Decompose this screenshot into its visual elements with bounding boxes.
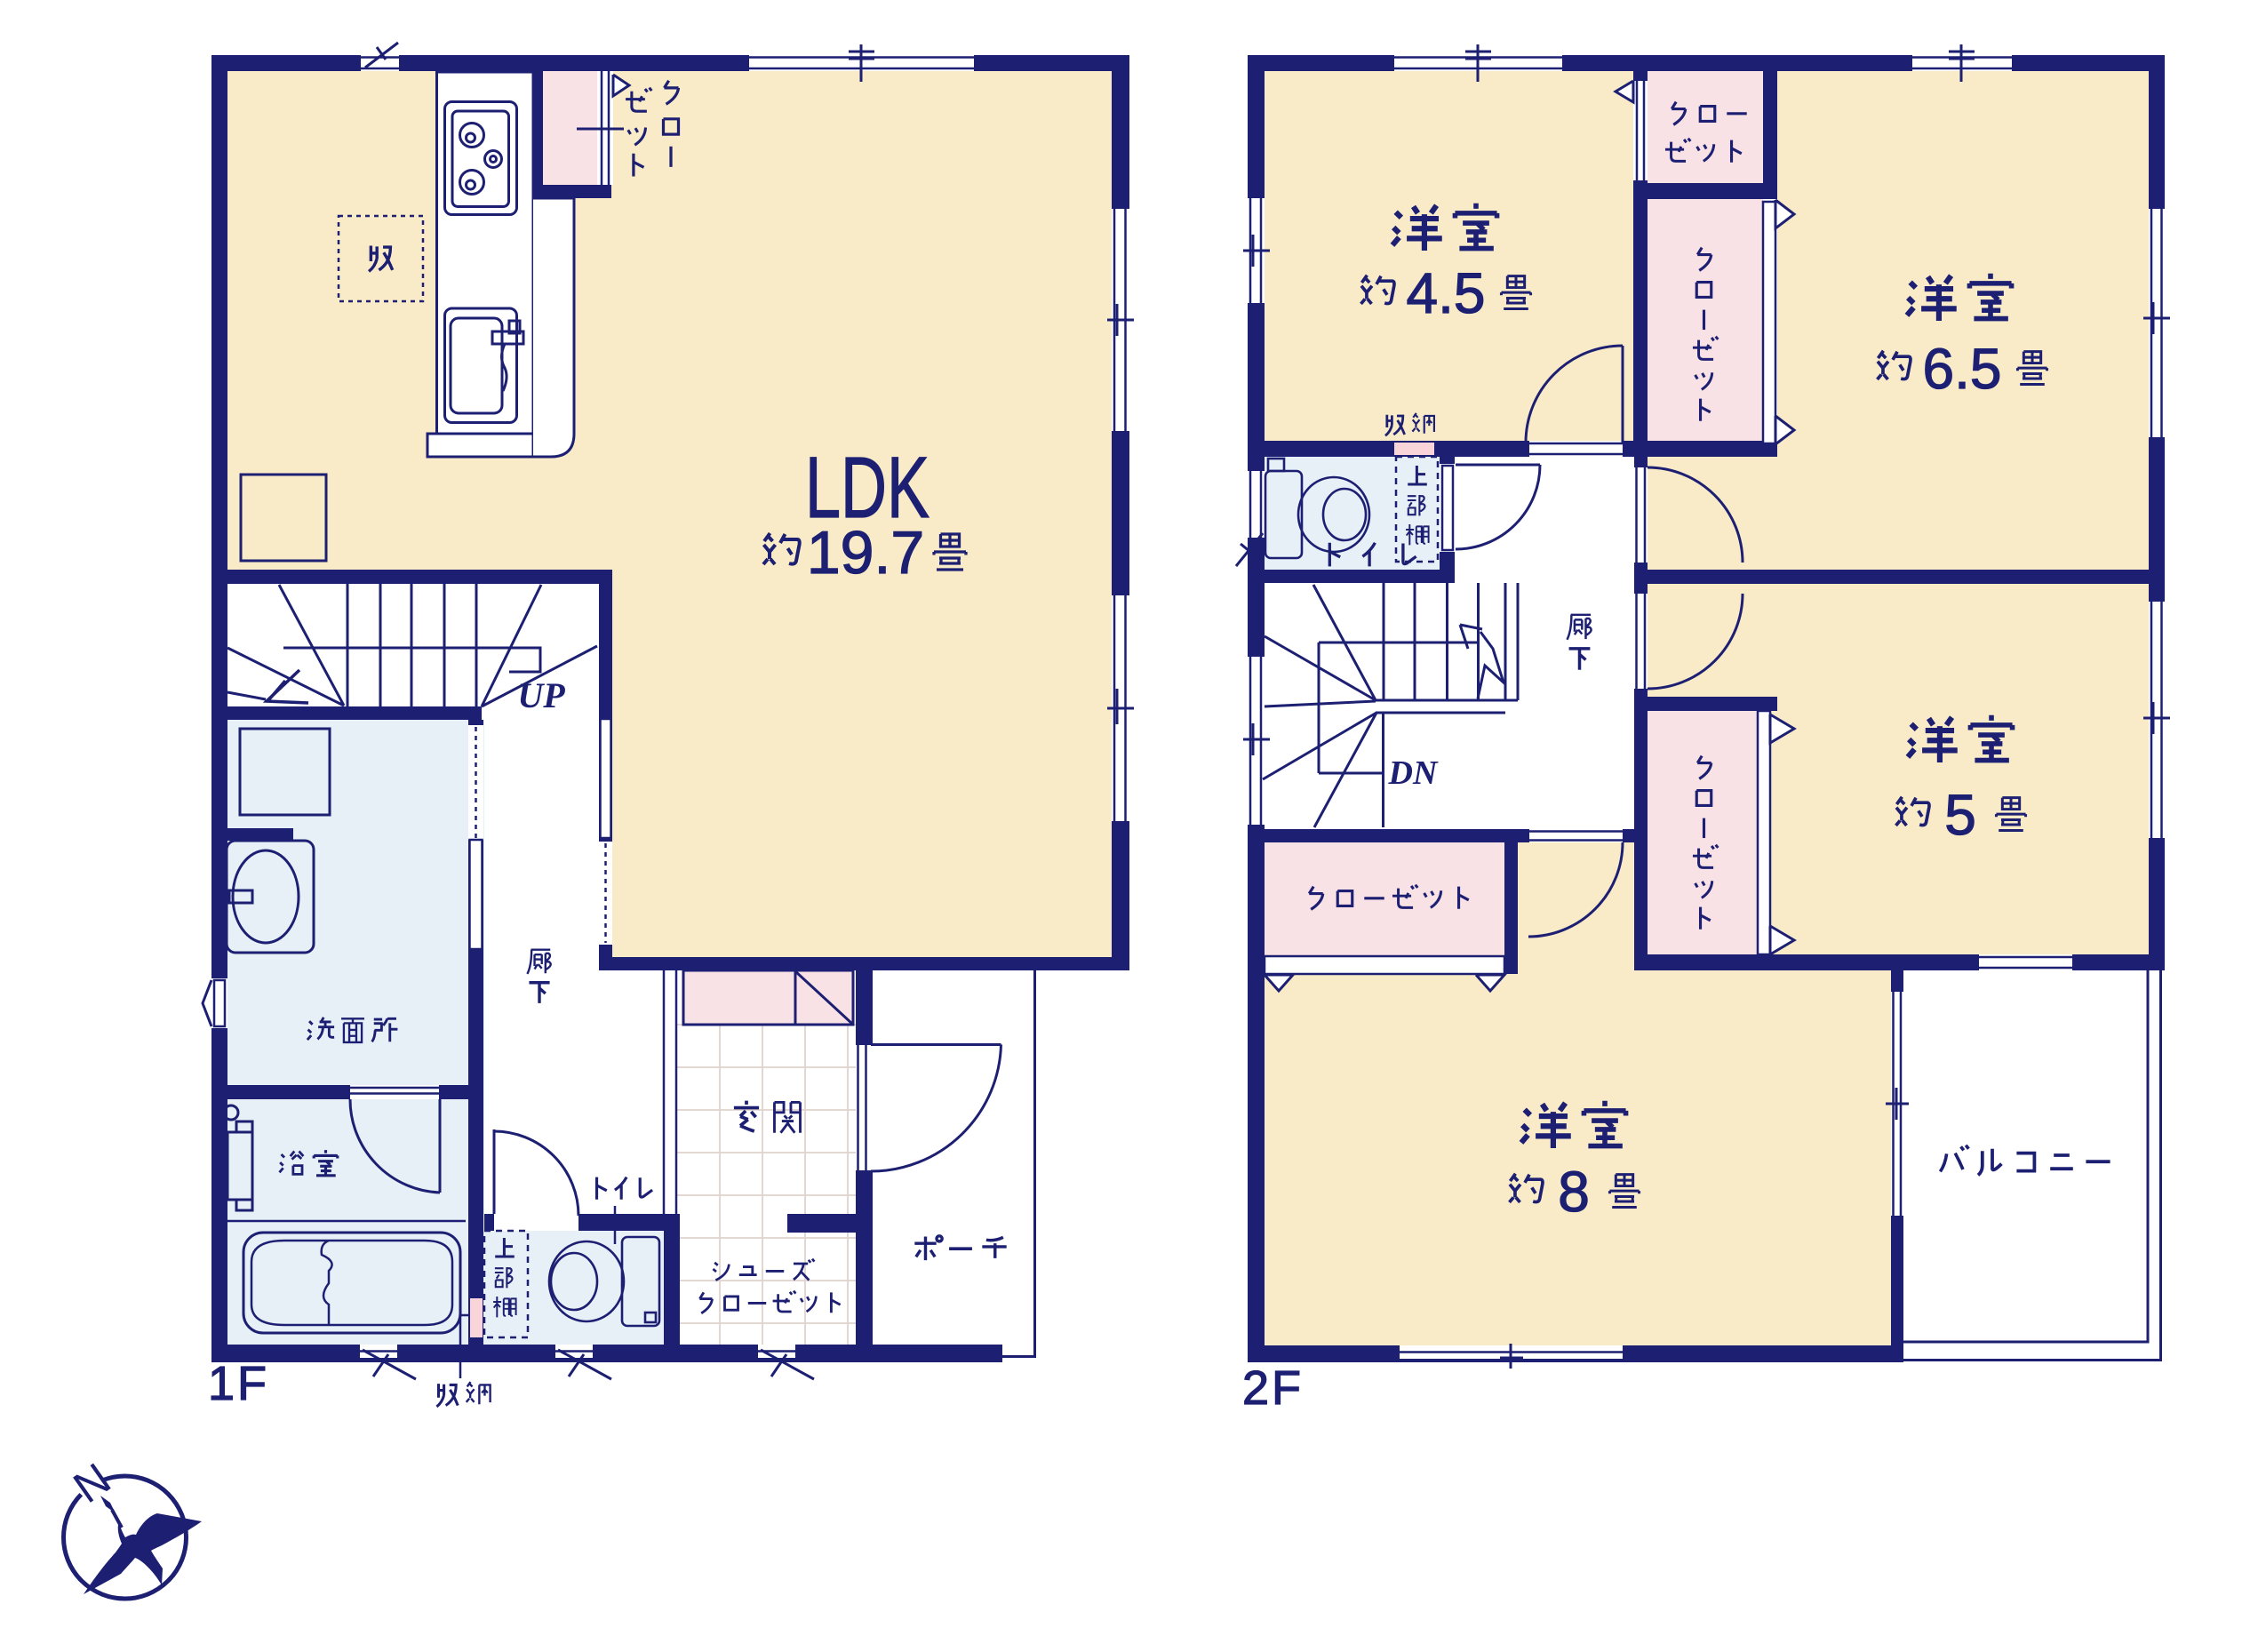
svg-text:4.5: 4.5 [1407,261,1486,325]
svg-text:DN: DN [1388,754,1439,792]
svg-text:19.7: 19.7 [807,519,924,587]
svg-text:8: 8 [1558,1160,1590,1224]
svg-text:6.5: 6.5 [1923,337,2002,401]
svg-text:5: 5 [1944,783,1976,847]
svg-text:1F: 1F [208,1357,269,1410]
svg-text:2F: 2F [1242,1361,1304,1415]
svg-text:UP: UP [517,675,565,715]
